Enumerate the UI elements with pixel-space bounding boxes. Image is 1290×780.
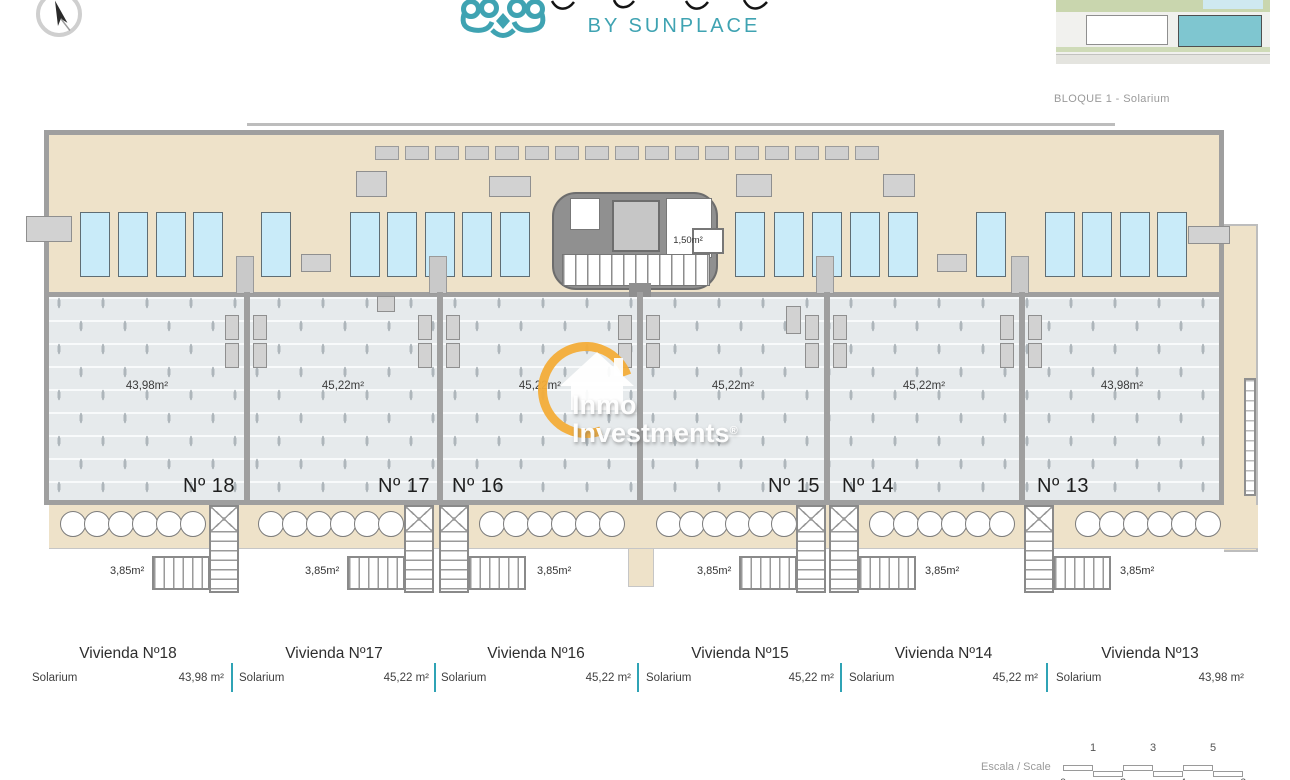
stair-run-treads <box>154 558 208 588</box>
table-row: Solarium45,22 m² <box>239 672 429 684</box>
planter-circle <box>1195 511 1221 537</box>
stair-area-label: 3,85m² <box>305 565 339 577</box>
stair-run-treads <box>470 558 524 588</box>
planter-circle <box>60 511 86 537</box>
stair-run-treads <box>349 558 403 588</box>
planter-circle <box>893 511 919 537</box>
table-header: Vivienda Nº13 <box>1054 645 1246 663</box>
table-row: Solarium43,98 m² <box>32 672 224 684</box>
floor-plan-page: BY SUNPLACE BLOQUE 1 - Solarium 1,50m² <box>0 0 1290 780</box>
stair-treads <box>798 531 824 591</box>
stair-treads <box>211 531 237 591</box>
wall-stub <box>236 256 254 294</box>
vent-box <box>377 296 395 312</box>
pergola-slat <box>765 146 789 160</box>
stair-run <box>152 556 210 590</box>
stair-landing-cross <box>441 507 467 531</box>
stair-treads <box>406 531 432 591</box>
stair-run <box>858 556 916 590</box>
planter-circle <box>917 511 943 537</box>
table-row: Solarium45,22 m² <box>646 672 834 684</box>
elevator-shaft <box>612 200 660 252</box>
pergola-slat <box>585 146 609 160</box>
table-divider <box>434 663 436 692</box>
core-room <box>570 198 600 230</box>
pergola-slat <box>435 146 459 160</box>
rooftop-service-box <box>883 174 915 197</box>
scale-label: Escala / Scale <box>981 761 1051 773</box>
unit-number-label: Nº 18 <box>183 475 235 498</box>
planter-circle <box>84 511 110 537</box>
stair-run-treads <box>860 558 914 588</box>
planter-circle <box>180 511 206 537</box>
stair-landing-cross <box>831 507 857 531</box>
stair-treads <box>441 531 467 591</box>
unit-number-label: Nº 14 <box>842 475 894 498</box>
table-col-unit17: Vivienda Nº17 Solarium45,22 m² <box>237 645 431 693</box>
sunbed <box>193 212 223 277</box>
vent-box <box>1028 343 1042 368</box>
sunbed <box>888 212 918 277</box>
planter-circle <box>354 511 380 537</box>
pergola-slat <box>795 146 819 160</box>
pergola-slat <box>495 146 519 160</box>
vent-box <box>446 315 460 340</box>
wall-stub <box>1011 256 1029 294</box>
unit-divider-wall <box>244 292 250 500</box>
sunbed <box>1120 212 1150 277</box>
planter-circle <box>527 511 553 537</box>
planter-circle <box>330 511 356 537</box>
stair-treads <box>1026 531 1052 591</box>
stair-area-label: 3,85m² <box>925 565 959 577</box>
pergola-slat <box>615 146 639 160</box>
table-header: Vivienda Nº15 <box>644 645 836 663</box>
sunbed <box>1045 212 1075 277</box>
sunbed <box>156 212 186 277</box>
sunbed <box>976 212 1006 277</box>
service-box-right <box>1188 226 1230 244</box>
unit-area-label: 45,22m² <box>283 380 403 392</box>
service-box-left <box>26 216 72 242</box>
stair-run <box>347 556 405 590</box>
stair-treads <box>831 531 857 591</box>
rooftop-service-box <box>356 171 387 197</box>
core-area-label: 1,50m² <box>664 235 712 246</box>
table-divider <box>840 663 842 692</box>
planter-circle <box>156 511 182 537</box>
table-divider <box>231 663 233 692</box>
planter-circle <box>551 511 577 537</box>
stair-column <box>404 505 434 593</box>
planter-circle <box>1171 511 1197 537</box>
table-header: Vivienda Nº18 <box>30 645 226 663</box>
pergola-slat <box>525 146 549 160</box>
stair-run-treads <box>1055 558 1109 588</box>
sunbed <box>500 212 530 277</box>
stair-run-treads <box>741 558 795 588</box>
planter-circle <box>771 511 797 537</box>
stair-run <box>1053 556 1111 590</box>
stair-column <box>209 505 239 593</box>
vent-box <box>1028 315 1042 340</box>
vent-box <box>833 343 847 368</box>
vent-box <box>1000 315 1014 340</box>
vent-box <box>786 306 801 334</box>
stair-column <box>796 505 826 593</box>
stair-landing-cross <box>1026 507 1052 531</box>
table-row: Solarium45,22 m² <box>849 672 1038 684</box>
table-col-unit18: Vivienda Nº18 Solarium43,98 m² <box>30 645 226 693</box>
sunbed <box>350 212 380 277</box>
unit-area-label: 45,22m² <box>864 380 984 392</box>
vent-box <box>225 343 239 368</box>
sunbed <box>850 212 880 277</box>
planter-circle <box>503 511 529 537</box>
vent-box <box>253 343 267 368</box>
unit-number-label: Nº 15 <box>768 475 820 498</box>
center-terrace-stem <box>628 549 654 587</box>
table-row: Solarium45,22 m² <box>441 672 631 684</box>
vent-box <box>446 343 460 368</box>
pergola-slat <box>825 146 849 160</box>
roof-overhang-line <box>247 123 1115 126</box>
stair-lift-core: 1,50m² <box>552 192 718 290</box>
rooftop-service-box <box>489 176 531 197</box>
sunbed <box>118 212 148 277</box>
planter-circle <box>1099 511 1125 537</box>
unit-number-label: Nº 13 <box>1037 475 1089 498</box>
rooftop-service-box <box>301 254 331 272</box>
unit-divider-wall <box>437 292 443 500</box>
pergola-slat <box>675 146 699 160</box>
table-col-unit14: Vivienda Nº14 Solarium45,22 m² <box>847 645 1040 693</box>
vent-box <box>253 315 267 340</box>
unit-number-label: Nº 16 <box>452 475 504 498</box>
unit-area-label: 43,98m² <box>1062 380 1182 392</box>
pergola-slat <box>645 146 669 160</box>
planter-circle <box>306 511 332 537</box>
stair-run <box>739 556 797 590</box>
inmo-investments-watermark: Inmo Investments® <box>528 336 738 458</box>
planter-circle <box>941 511 967 537</box>
vent-box <box>805 343 819 368</box>
planter-circle <box>378 511 404 537</box>
planter-circle <box>965 511 991 537</box>
planter-circle <box>989 511 1015 537</box>
core-staircase <box>562 254 710 286</box>
stair-area-label: 3,85m² <box>537 565 571 577</box>
planter-circle <box>282 511 308 537</box>
pergola-slat <box>375 146 399 160</box>
sunbed <box>1157 212 1187 277</box>
rooftop-service-box <box>937 254 967 272</box>
planter-circle <box>1123 511 1149 537</box>
planter-circle <box>599 511 625 537</box>
stair-area-label: 3,85m² <box>110 565 144 577</box>
unit-divider-wall <box>1019 292 1025 500</box>
pergola-slat <box>855 146 879 160</box>
planter-circle <box>258 511 284 537</box>
stair-landing-cross <box>798 507 824 531</box>
sunbed <box>774 212 804 277</box>
wall-stub <box>429 256 447 294</box>
table-header: Vivienda Nº14 <box>847 645 1040 663</box>
vent-box <box>225 315 239 340</box>
table-divider <box>1046 663 1048 692</box>
table-header: Vivienda Nº17 <box>237 645 431 663</box>
table-header: Vivienda Nº16 <box>439 645 633 663</box>
unit-number-label: Nº 17 <box>378 475 430 498</box>
planter-circle <box>1147 511 1173 537</box>
exterior-ladder <box>1244 378 1256 496</box>
watermark-line2: Investments® <box>572 420 738 447</box>
stair-area-label: 3,85m² <box>1120 565 1154 577</box>
vent-box <box>805 315 819 340</box>
stair-column <box>829 505 859 593</box>
table-row: Solarium43,98 m² <box>1056 672 1244 684</box>
sunbed <box>462 212 492 277</box>
vent-box <box>418 315 432 340</box>
stair-column <box>1024 505 1054 593</box>
registered-mark: ® <box>730 425 738 437</box>
stair-landing-cross <box>406 507 432 531</box>
planter-circle <box>108 511 134 537</box>
table-divider <box>637 663 639 692</box>
pergola-slat <box>465 146 489 160</box>
planter-circle <box>479 511 505 537</box>
vent-box <box>1000 343 1014 368</box>
vent-box <box>418 343 432 368</box>
sunbed <box>735 212 765 277</box>
sunbed <box>261 212 291 277</box>
sunbed <box>80 212 110 277</box>
pergola-slat <box>405 146 429 160</box>
planter-circle <box>1075 511 1101 537</box>
unit-area-label: 43,98m² <box>87 380 207 392</box>
planter-circle <box>132 511 158 537</box>
planter-circle <box>869 511 895 537</box>
stair-column <box>439 505 469 593</box>
stair-run <box>468 556 526 590</box>
stair-area-label: 3,85m² <box>697 565 731 577</box>
stair-landing-cross <box>211 507 237 531</box>
table-col-unit15: Vivienda Nº15 Solarium45,22 m² <box>644 645 836 693</box>
planter-circle <box>575 511 601 537</box>
unit-divider-wall <box>824 292 830 500</box>
table-col-unit16: Vivienda Nº16 Solarium45,22 m² <box>439 645 633 693</box>
table-col-unit13: Vivienda Nº13 Solarium43,98 m² <box>1054 645 1246 693</box>
sunbed <box>1082 212 1112 277</box>
watermark-line1: Inmo <box>572 392 637 419</box>
sunbed <box>387 212 417 277</box>
rooftop-service-box <box>736 174 772 197</box>
pergola-slat <box>705 146 729 160</box>
pergola-slat <box>735 146 759 160</box>
wall-stub <box>816 256 834 294</box>
pergola-slat <box>555 146 579 160</box>
vent-box <box>833 315 847 340</box>
